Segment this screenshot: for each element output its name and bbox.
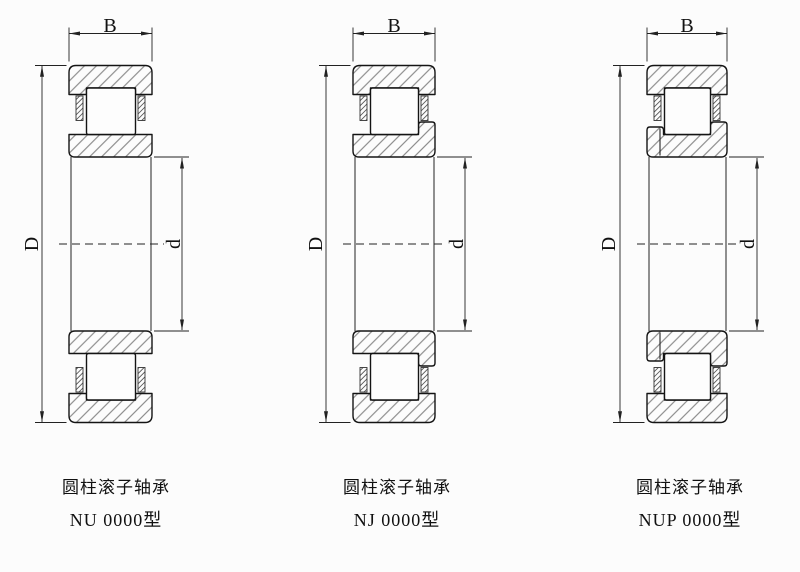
cage-bar [713, 96, 720, 121]
b-dim-arrow [716, 32, 727, 36]
cage-bar [654, 368, 661, 393]
roller-top [371, 88, 419, 135]
width-dimension-label: B [103, 16, 116, 36]
outer-dia-dim-arrow [324, 66, 328, 77]
b-dim-arrow [424, 32, 435, 36]
bore-dia-dim-arrow [463, 320, 467, 331]
cage-bar [713, 368, 720, 393]
caption-type-label: NJ 0000型 [343, 504, 451, 536]
outer-dia-dim-arrow [618, 411, 622, 422]
cage-bar [421, 96, 428, 121]
roller-top [665, 88, 711, 135]
outer-diameter-label: D [22, 237, 42, 251]
caption-bearing-nu: 圆柱滚子轴承 NU 0000型 [62, 472, 170, 536]
bore-dia-dim-arrow [180, 320, 184, 331]
caption-title: 圆柱滚子轴承 [62, 472, 170, 504]
outer-diameter-label: D [306, 237, 326, 251]
bore-diameter-label: d [164, 239, 184, 249]
caption-title: 圆柱滚子轴承 [636, 472, 744, 504]
outer-diameter-label: D [599, 237, 619, 251]
bore-dia-dim-arrow [755, 320, 759, 331]
cage-bar [138, 368, 145, 393]
bore-diameter-label: d [738, 239, 758, 249]
roller-bottom [665, 354, 711, 401]
caption-bearing-nup: 圆柱滚子轴承 NUP 0000型 [636, 472, 744, 536]
b-dim-arrow [353, 32, 364, 36]
bearing-nu-drawing [35, 28, 189, 423]
cage-bar [76, 96, 83, 121]
width-dimension-label: B [680, 16, 693, 36]
outer-dia-dim-arrow [40, 66, 44, 77]
outer-dia-dim-arrow [618, 66, 622, 77]
outer-dia-dim-arrow [40, 411, 44, 422]
bore-dia-dim-arrow [755, 158, 759, 169]
cage-bar [360, 368, 367, 393]
cage-bar [138, 96, 145, 121]
caption-bearing-nj: 圆柱滚子轴承 NJ 0000型 [343, 472, 451, 536]
cage-bar [654, 96, 661, 121]
caption-type-label: NUP 0000型 [636, 504, 744, 536]
roller-top [87, 88, 136, 135]
cage-bar [421, 368, 428, 393]
caption-type-label: NU 0000型 [62, 504, 170, 536]
b-dim-arrow [141, 32, 152, 36]
width-dimension-label: B [387, 16, 400, 36]
caption-title: 圆柱滚子轴承 [343, 472, 451, 504]
bearing-nup-drawing [613, 28, 764, 423]
cage-bar [76, 368, 83, 393]
cage-bar [360, 96, 367, 121]
bearing-nj-drawing [319, 28, 472, 423]
bore-diameter-label: d [447, 239, 467, 249]
diagram-canvas: B B B D D D d d d 圆柱滚子轴承 NU 0000型 圆柱滚子轴承… [0, 0, 800, 572]
bore-dia-dim-arrow [180, 158, 184, 169]
outer-dia-dim-arrow [324, 411, 328, 422]
roller-bottom [87, 354, 136, 401]
inner-ring-top-section [69, 135, 152, 158]
roller-bottom [371, 354, 419, 401]
b-dim-arrow [69, 32, 80, 36]
bore-dia-dim-arrow [463, 158, 467, 169]
b-dim-arrow [647, 32, 658, 36]
inner-ring-bottom-section [69, 331, 152, 354]
